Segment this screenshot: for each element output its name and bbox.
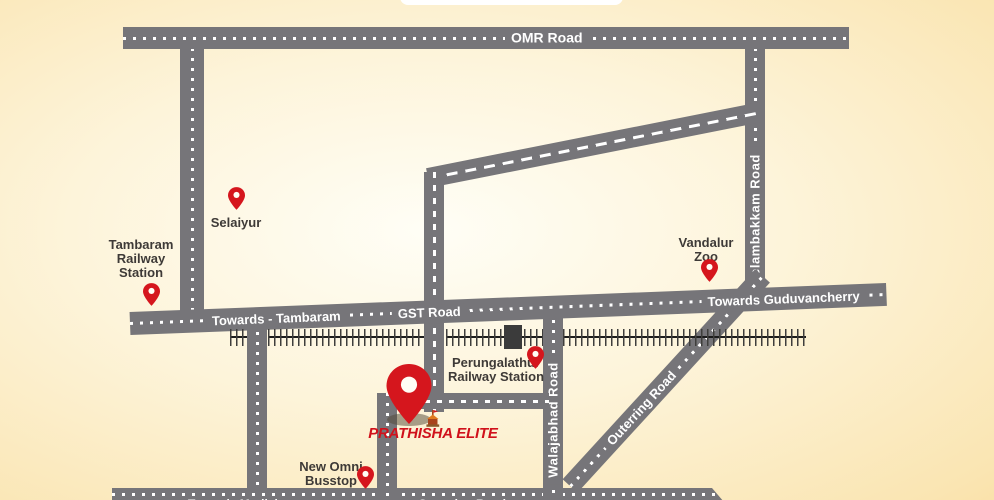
location-map: Kelambakkam Road OMR Road Towards Mudich… <box>0 0 994 500</box>
road-inner-left-vertical <box>247 322 267 500</box>
road-center-line <box>428 110 762 179</box>
road-omr: OMR Road <box>123 27 849 49</box>
tambaram-map-pin-icon <box>143 283 160 311</box>
road-bottom: Towards Mudichur Outerring Road <box>112 488 724 500</box>
outerring-road-label: Outerring Road <box>600 363 684 452</box>
road-center-line <box>433 172 436 412</box>
selaiyur-label: Selaiyur <box>195 216 277 230</box>
top-logo-box <box>400 0 623 5</box>
vandalur-zoo-map-pin-icon <box>701 259 718 287</box>
perungalathur-map-pin-icon <box>527 346 544 374</box>
tambaram-station-label: Tambaram Railway Station <box>95 238 187 280</box>
road-center-line <box>123 37 849 40</box>
road-center-line <box>256 322 259 500</box>
railway-track <box>446 329 543 346</box>
towards-tambaram-label: Towards - Tambaram <box>206 308 347 328</box>
road-diagonal-top <box>426 102 763 188</box>
gst-road-label: GST Road <box>392 303 467 321</box>
road-center-line <box>191 48 194 314</box>
railway-track <box>268 329 424 346</box>
road-kelambakkam: Kelambakkam Road <box>745 48 765 294</box>
railway-track <box>563 329 806 346</box>
road-center-line <box>112 493 724 496</box>
selaiyur-map-pin-icon <box>228 187 245 215</box>
new-omni-map-pin-icon <box>357 466 374 494</box>
railway-track <box>230 329 247 346</box>
towards-guduvancherry-label: Towards Guduvancherry <box>701 288 866 309</box>
railway-station-marker-icon <box>504 325 522 349</box>
omr-road-label: OMR Road <box>505 31 589 46</box>
site-name: PRATHISHA ELITE <box>362 425 504 442</box>
